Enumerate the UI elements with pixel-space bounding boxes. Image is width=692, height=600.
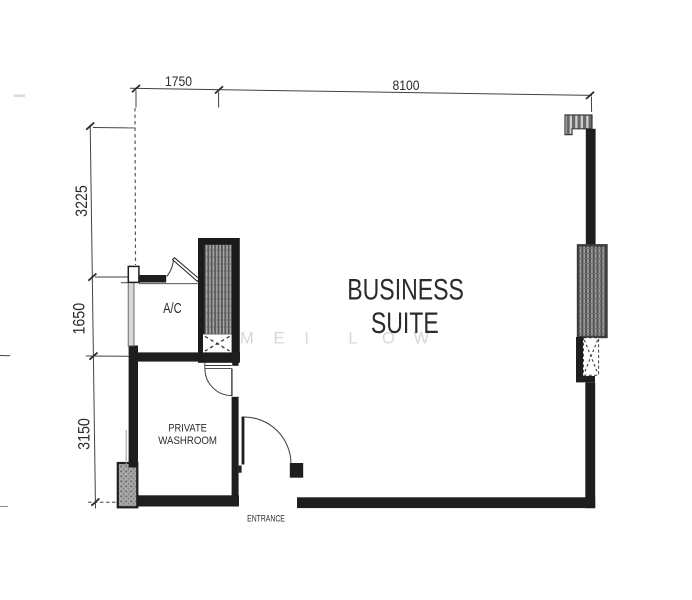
- svg-text:1650: 1650: [71, 303, 89, 335]
- svg-text:1750: 1750: [165, 73, 192, 89]
- svg-text:8100: 8100: [392, 77, 419, 93]
- svg-text:3150: 3150: [76, 418, 94, 450]
- svg-text:ENTRANCE: ENTRANCE: [247, 513, 285, 523]
- svg-text:3225: 3225: [73, 185, 91, 217]
- svg-text:BUSINESS: BUSINESS: [347, 273, 464, 306]
- svg-text:WASHROOM: WASHROOM: [158, 435, 217, 448]
- svg-text:PRIVATE: PRIVATE: [168, 423, 207, 435]
- svg-text:A/C: A/C: [163, 299, 182, 316]
- svg-text:SUITE: SUITE: [371, 306, 439, 339]
